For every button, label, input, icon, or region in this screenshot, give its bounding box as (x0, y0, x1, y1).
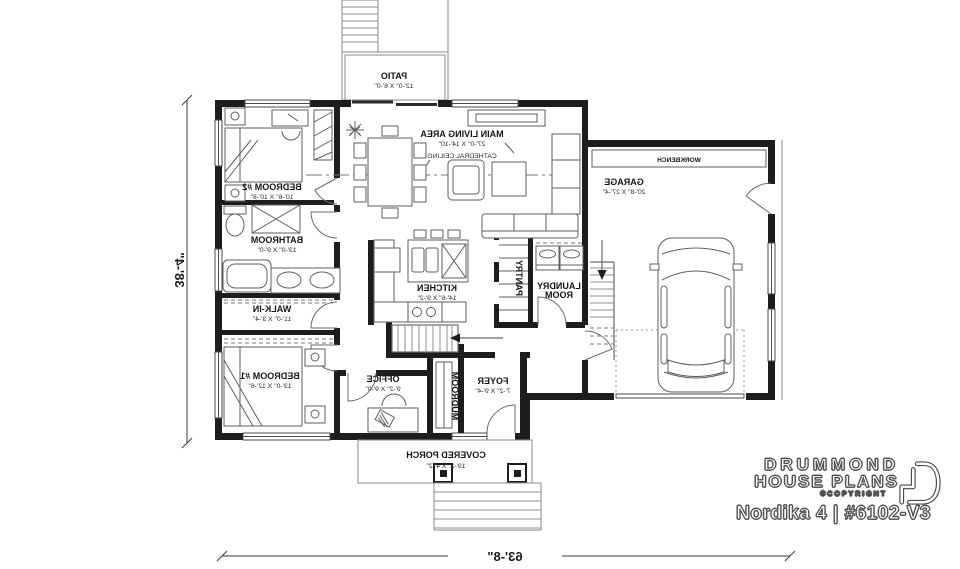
nightstand-icon (225, 185, 245, 201)
closet-shelf-icon (314, 110, 332, 160)
room-note-cathedral-ceiling: CATHEDRAL CEILING (427, 153, 497, 160)
window-icon (768, 309, 775, 361)
bathroom-door-icon (311, 212, 337, 238)
stool-icon (448, 230, 460, 238)
laundry-door-icon (538, 297, 566, 325)
room-label-office: OFFICE (367, 374, 400, 384)
room-label-mudroom: MUDROOM (450, 372, 460, 421)
cabinet-icon (552, 134, 580, 214)
car-icon (650, 238, 742, 392)
room-label-bedroom2: BEDROOM #2 (242, 182, 302, 192)
garage-entry-door-icon (585, 331, 612, 360)
room-size-bedroom1: 13'-0" X 12'-6" (248, 383, 292, 390)
window-icon (215, 120, 222, 166)
fridge-icon (374, 248, 400, 272)
chair-icon (414, 187, 426, 202)
room-label-walkin: WALK-IN (253, 304, 292, 314)
room-size-patio: 12'-0" X 6'-0" (374, 83, 414, 90)
nightstand-icon (305, 349, 325, 366)
sliding-door-icon (352, 101, 437, 107)
porch-steps-icon (434, 483, 541, 530)
linen-closet-icon (252, 205, 300, 233)
car-mirror-icon (650, 264, 659, 270)
room-label-foyer: FOYER (477, 376, 509, 386)
branding-block: DRUMMOND HOUSE PLANS ©COPYRIGHT Nordika … (735, 456, 945, 526)
room-label-workbench: WORKBENCH (657, 157, 701, 164)
window-icon (243, 433, 330, 440)
garage-door-icon (616, 394, 744, 398)
garage-service-door-icon (746, 183, 771, 214)
room-size-foyer: 7'-2" X 9'-4" (475, 388, 511, 395)
room-label-patio: PATIO (381, 71, 407, 81)
front-door-icon (487, 405, 515, 433)
stool-icon (414, 230, 426, 238)
copyright-text: ©COPYRIGHT (820, 490, 887, 500)
room-label-garage: GARAGE (604, 177, 644, 187)
dimension-height-label: 38'-4" (172, 252, 187, 287)
window-icon (215, 352, 222, 418)
window-icon (245, 100, 310, 107)
plant-icon (346, 121, 364, 139)
porch-post-icon (508, 464, 526, 482)
washer-icon (536, 246, 559, 270)
nightstand-icon (305, 406, 325, 423)
mudroom-fixtures (436, 362, 452, 428)
side-table-icon (492, 162, 526, 196)
chair-icon (382, 208, 398, 218)
chair-icon (354, 143, 366, 158)
patio-stairs-icon (342, 0, 378, 52)
room-size-bedroom2: 10'-6" X 10'-8" (250, 194, 294, 201)
basement-stairs (392, 325, 503, 352)
kitchen-fixtures (374, 230, 468, 322)
brand-name-line1: DRUMMOND (764, 456, 899, 473)
dimension-width-label: 63'-8" (487, 549, 522, 564)
garage-stairs-icon (590, 240, 614, 360)
room-size-porch: 19'-2" X 4'-2" (426, 463, 466, 470)
closet-rod-icon (224, 300, 334, 303)
room-size-bathroom: 13'-0" X 9'-0" (257, 247, 297, 254)
chair-icon (414, 165, 426, 180)
room-label-bedroom1: BEDROOM #1 (240, 371, 300, 381)
floor-plan-sheet: 38'-4" 63'-8" (0, 0, 960, 569)
tv-console-icon (468, 110, 545, 126)
window-icon (452, 433, 487, 440)
laundry-fixtures (536, 243, 584, 270)
brand-name-line2: HOUSE PLANS (754, 473, 899, 490)
room-size-living: 27'-0" X 14'-10" (438, 141, 485, 148)
room-label-pantry: PANTRY (514, 260, 524, 296)
chair-icon (382, 126, 398, 136)
vanity-icon (271, 268, 340, 293)
bed-icon (225, 128, 302, 182)
nightstand-icon (225, 108, 245, 125)
car-mirror-icon (733, 264, 742, 270)
window-icon (215, 249, 222, 291)
chair-icon (354, 187, 366, 202)
chair-icon (414, 143, 426, 158)
desk-chair-icon (382, 394, 406, 406)
dryer-icon (560, 246, 583, 270)
room-size-garage: 20'-8" X 27'-4" (602, 189, 646, 196)
drummond-logo-icon (897, 458, 943, 508)
office-fixtures (368, 394, 418, 432)
toilet-icon (224, 206, 246, 236)
room-label-bathroom: BATHROOM (251, 235, 303, 245)
room-size-walkin: 11'-0" X 3'-4" (252, 316, 291, 323)
window-icon (452, 100, 518, 107)
dining-table-icon (368, 138, 412, 206)
room-size-office: 9'-2" X 9'-0" (365, 386, 401, 393)
walkin-door-icon (311, 302, 337, 328)
stool-icon (431, 230, 443, 238)
room-size-kitchen: 14'-6" X 9'-2" (417, 295, 457, 302)
range-icon (408, 302, 442, 322)
window-icon (768, 243, 775, 294)
room-label-living: MAIN LIVING AREA (420, 129, 504, 139)
room-label-laundry2: ROOM (545, 290, 573, 300)
room-label-porch: COVERED PORCH (406, 450, 486, 460)
sofa-icon (482, 214, 578, 238)
chair-icon (354, 165, 366, 180)
bathtub-icon (223, 260, 271, 292)
room-label-kitchen: KITCHEN (417, 283, 457, 293)
